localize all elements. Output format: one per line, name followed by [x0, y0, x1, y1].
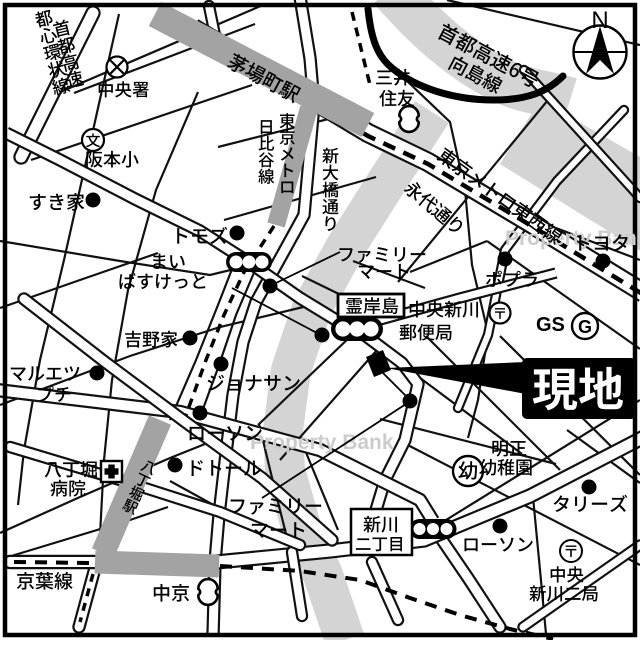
svg-text:GS: GS	[536, 314, 565, 336]
svg-text:Property Bank: Property Bank	[250, 431, 394, 454]
svg-text:G: G	[578, 317, 592, 337]
svg-text:N: N	[591, 7, 608, 34]
